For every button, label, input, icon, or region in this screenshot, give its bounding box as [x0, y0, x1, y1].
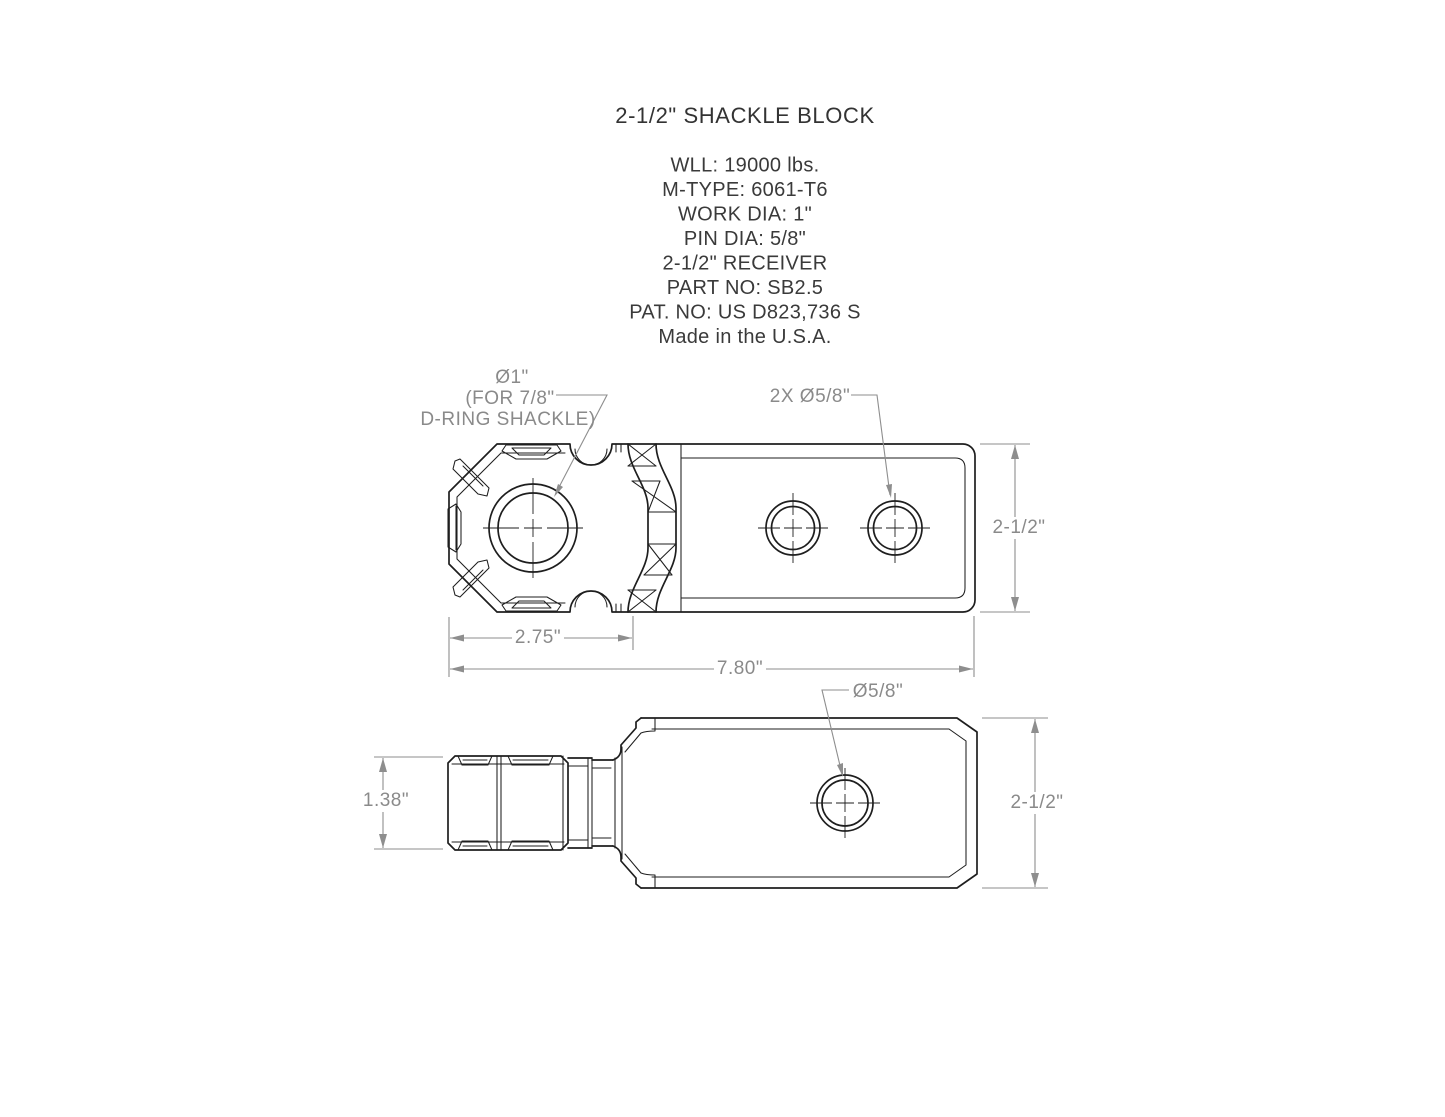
spec-line-receiver: 2-1/2" RECEIVER	[663, 252, 828, 274]
drawing-title: 2-1/2" SHACKLE BLOCK	[615, 103, 874, 128]
spec-line-pindia: PIN DIA: 5/8"	[684, 228, 806, 250]
main-hole-label-line2: (FOR 7/8"	[465, 388, 554, 409]
top-view	[448, 444, 975, 612]
waist-band	[628, 444, 681, 612]
top-view-dimensions: Ø1" (FOR 7/8" D-RING SHACKLE) 2X Ø5/8" 2…	[420, 367, 1046, 680]
dim-head-thickness: 1.38"	[363, 790, 409, 811]
side-collar-neck	[568, 747, 622, 859]
side-head-outline	[448, 756, 568, 850]
title-block: 2-1/2" SHACKLE BLOCK WLL: 19000 lbs. M-T…	[615, 103, 874, 348]
spec-line-madein: Made in the U.S.A.	[658, 326, 831, 348]
side-head-slots	[458, 756, 553, 850]
side-view	[448, 718, 977, 888]
side-dimension-arrows	[379, 719, 1039, 887]
main-hole-label-line1: Ø1"	[495, 367, 529, 388]
spec-line-wll: WLL: 19000 lbs.	[670, 154, 819, 176]
side-step-bottom	[613, 846, 641, 888]
dim-height-top-view: 2-1/2"	[992, 517, 1045, 538]
main-hole-label-line3: D-RING SHACKLE)	[420, 409, 595, 430]
dim-head-width: 2.75"	[515, 627, 561, 648]
side-step-top	[613, 718, 641, 760]
pin-hole-right	[860, 493, 930, 563]
leader-pin-holes	[851, 395, 890, 495]
side-pin-hole-label: Ø5/8"	[853, 681, 903, 702]
spec-line-workdia: WORK DIA: 1"	[678, 203, 812, 225]
dim-height-side-view: 2-1/2"	[1010, 792, 1063, 813]
pin-holes-label: 2X Ø5/8"	[770, 386, 850, 407]
main-hole	[483, 478, 583, 578]
pin-hole-left	[758, 493, 828, 563]
spec-line-partno: PART NO: SB2.5	[667, 277, 824, 299]
side-block-outline	[641, 718, 977, 888]
dim-overall-length: 7.80"	[717, 658, 763, 679]
spec-line-mtype: M-TYPE: 6061-T6	[662, 179, 828, 201]
side-pin-hole	[810, 768, 880, 838]
drawing-sheet: 2-1/2" SHACKLE BLOCK WLL: 19000 lbs. M-T…	[0, 0, 1445, 1117]
side-view-dimensions: Ø5/8" 1.38" 2-1/2"	[360, 681, 1064, 888]
leader-side-pin-hole	[822, 690, 849, 774]
drawing-canvas: 2-1/2" SHACKLE BLOCK WLL: 19000 lbs. M-T…	[0, 0, 1445, 1117]
spec-line-patno: PAT. NO: US D823,736 S	[629, 301, 861, 323]
